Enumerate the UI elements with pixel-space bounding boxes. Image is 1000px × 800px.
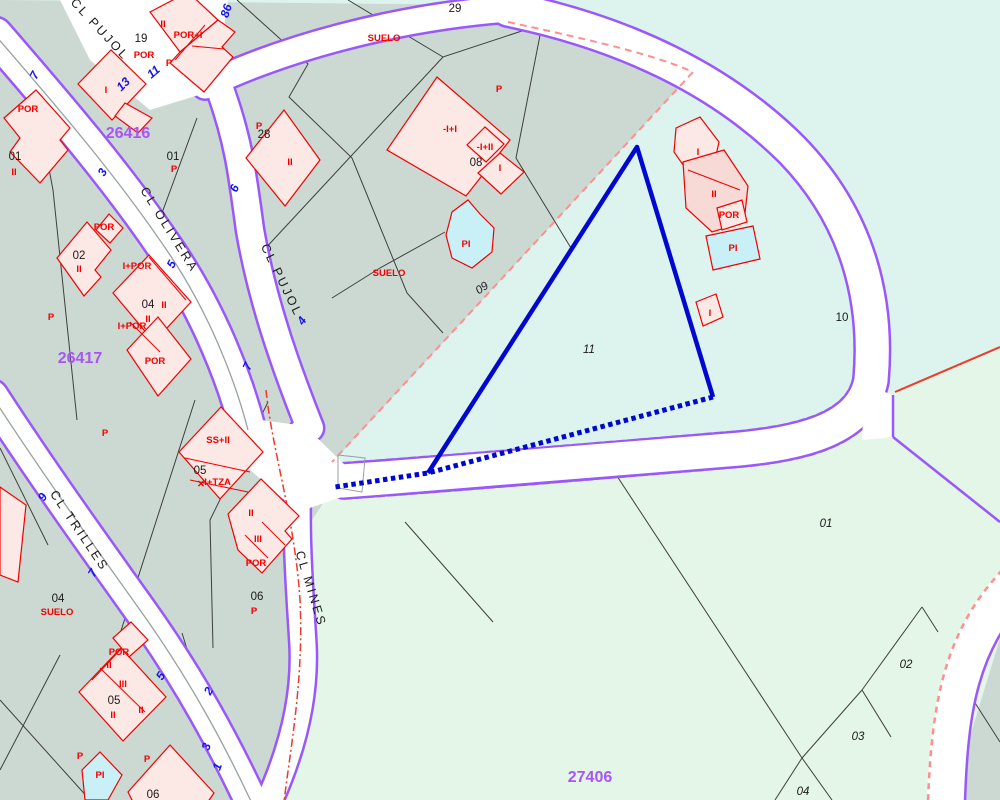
building-annotation-label: SUELO [373, 268, 406, 279]
building-annotation-label: P [144, 754, 151, 765]
building-annotation-label: I [697, 147, 700, 158]
building-annotation-label: II [248, 508, 253, 519]
parcel-number-label: 05 [108, 695, 121, 707]
zone-number-label: 26416 [106, 125, 151, 142]
building-annotation-label: III [254, 534, 262, 545]
building-annotation-label: II [110, 710, 115, 721]
building-annotation-label: -I+II [477, 142, 494, 153]
parcel-number-label: 01 [9, 151, 22, 163]
building-annotation-label: POR [94, 222, 115, 233]
building-annotation-label: POR [18, 104, 39, 115]
building-annotation-label: P [251, 606, 258, 617]
building-annotation-label: PI [462, 239, 471, 250]
parcel-number-label: 06 [147, 789, 160, 800]
zone-number-label: 26417 [58, 350, 103, 367]
building-annotation-label: -I+TZA [201, 477, 231, 488]
parcel-number-label: 04 [797, 786, 810, 798]
building-annotation-label: P [496, 84, 503, 95]
building-annotation-label: II [138, 705, 143, 716]
building-annotation-label: P [77, 751, 84, 762]
parcel-number-label: 29 [449, 3, 462, 15]
parcel-number-label: 08 [470, 157, 483, 169]
building-annotation-label: -I+I [443, 124, 457, 135]
building-annotation-label: P [256, 121, 263, 132]
cadastral-map[interactable]: CL PUJOLCL PUJOLCL OLIVERACL TRILLESCL M… [0, 0, 1000, 800]
parcel-number-label: 11 [583, 344, 595, 356]
building-annotation-label: I+POR [123, 261, 152, 272]
cadastral-map-viewport[interactable]: CL PUJOLCL PUJOLCL OLIVERACL TRILLESCL M… [0, 0, 1000, 800]
parcel-number-label: 01 [820, 518, 833, 530]
zone-number-label: 27406 [568, 769, 613, 786]
building-annotation-label: I [105, 85, 108, 96]
building-annotation-label: II [287, 157, 292, 168]
building-annotation-label: II [11, 167, 16, 178]
building-annotation-label: P [102, 428, 109, 439]
building-annotation-label: POR [109, 647, 130, 658]
building-annotation-label: SS+II [206, 435, 230, 446]
building-annotation-label: II [711, 189, 716, 200]
building-annotation-label: POR [134, 50, 155, 61]
building-annotation-label: P [48, 312, 55, 323]
parcel-number-label: 06 [251, 591, 264, 603]
building-annotation-label: II [106, 660, 111, 671]
building-annotation-label: PI [96, 770, 105, 781]
building-annotation-label: POR [719, 210, 740, 221]
parcel-number-label: 02 [73, 250, 86, 262]
building-annotation-label: I [709, 308, 712, 319]
building-annotation-label: P [166, 58, 173, 69]
parcel-number-label: 19 [135, 33, 148, 45]
parcel-number-label: 04 [142, 299, 155, 311]
building-annotation-label: POR [145, 356, 166, 367]
building-annotation-label: P [171, 164, 178, 175]
building-annotation-label: II [161, 300, 166, 311]
building-annotation-label: II [76, 264, 81, 275]
building-annotation-label: PI [729, 243, 738, 254]
building-annotation-label: II [160, 19, 165, 30]
parcel-number-label: 01 [167, 151, 180, 163]
parcel-number-label: 10 [836, 312, 849, 324]
parcel-number-label: 05 [194, 465, 207, 477]
building-annotation-label: POR [246, 558, 267, 569]
building-annotation-label: POR+I [174, 30, 203, 41]
building-annotation-label: ✕ [197, 479, 205, 490]
building-annotation-label: SUELO [368, 33, 401, 44]
parcel-number-label: 02 [900, 659, 913, 671]
building-annotation-label: I [499, 163, 502, 174]
parcel-number-label: 03 [852, 731, 865, 743]
building-annotation-label: III [119, 679, 127, 690]
parcel-number-label: 04 [52, 593, 65, 605]
building-annotation-label: I+POR [118, 321, 147, 332]
building-annotation-label: SUELO [41, 607, 74, 618]
